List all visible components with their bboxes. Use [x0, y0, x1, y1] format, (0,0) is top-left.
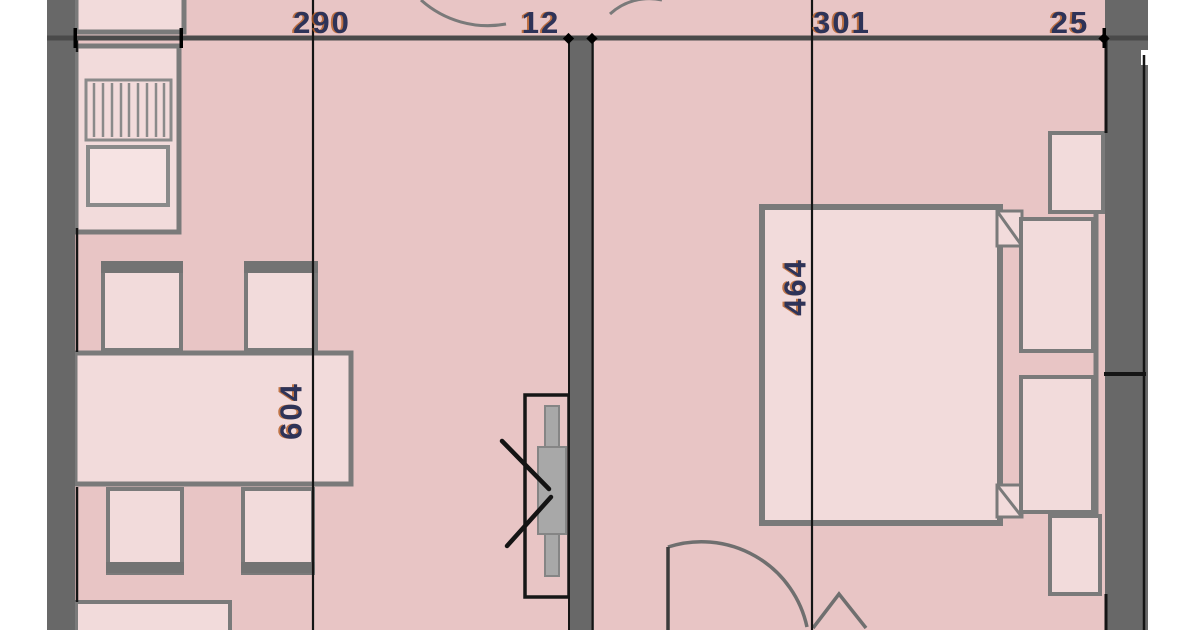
dim-label-25: 25 — [1051, 5, 1089, 40]
duct-bar-mid — [538, 447, 566, 534]
bed-mattress — [762, 207, 1000, 523]
nightstand-top — [1050, 133, 1103, 212]
bed-dim-label-464: 464 — [778, 258, 813, 316]
chair-bottom-left — [106, 489, 184, 573]
chair-top-right — [244, 261, 318, 350]
floor-plan-canvas: 290 12 301 25 604 464 — [0, 0, 1200, 630]
bench — [76, 602, 230, 630]
wall-left — [47, 0, 75, 630]
wall-middle — [568, 37, 594, 630]
dim-label-12: 12 — [522, 5, 560, 40]
wall-right — [1105, 0, 1148, 630]
stove-hatch — [86, 80, 171, 140]
bed-fold-corner-top — [997, 211, 1022, 246]
kitchen-sink — [88, 147, 168, 205]
pillow-bottom — [1021, 377, 1093, 512]
chair-bottom-right — [241, 489, 315, 573]
dim-label-290: 290 — [293, 5, 351, 40]
pillow-top — [1021, 219, 1093, 351]
dining-table — [75, 353, 351, 484]
bed-fold-corner-bottom — [997, 485, 1022, 517]
dimension-line — [47, 36, 1148, 41]
chair-top-left — [101, 261, 183, 350]
dim-label-301: 301 — [813, 5, 871, 40]
table-dim-label-604: 604 — [274, 382, 309, 440]
nightstand-bottom — [1050, 516, 1100, 594]
kitchen-upper-cabinet — [76, 0, 184, 32]
floor-plan: 290 12 301 25 604 464 — [0, 0, 1200, 630]
